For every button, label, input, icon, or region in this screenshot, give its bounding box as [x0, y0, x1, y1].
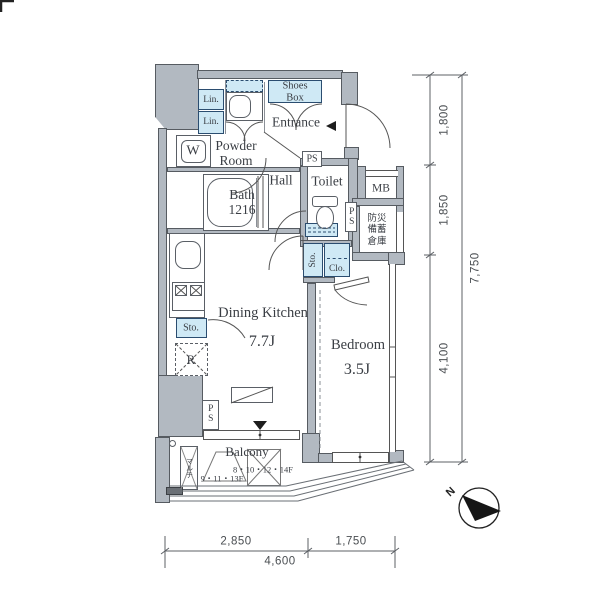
- stove-burner-1: [175, 285, 187, 296]
- label-mb: MB: [372, 183, 390, 196]
- label-linen-2: Lin.: [203, 117, 219, 127]
- label-storage-toilet-side: Sto.: [308, 252, 318, 267]
- wall-mb-left: [357, 166, 366, 202]
- dim-bottom-total-4600: 4,600: [264, 556, 295, 569]
- wall-top-left-block: [155, 64, 199, 130]
- label-dining-kitchen: Dining Kitchen: [218, 306, 308, 322]
- wall-mb-bottom: [352, 198, 404, 206]
- label-storage-kitchen: Sto.: [183, 323, 199, 334]
- dim-right-total-7750: 7,750: [470, 252, 483, 283]
- entrance-direction-icon: [326, 121, 336, 131]
- label-ps-kitchen: PS: [205, 404, 215, 424]
- compass-needle: [462, 495, 501, 521]
- label-balcony-floors-a: 9・11・13F: [201, 474, 244, 483]
- dining-table: [231, 387, 273, 403]
- label-washer: W: [186, 143, 199, 158]
- vanity-basin: [229, 95, 251, 118]
- wall-kitchen-sw-block: [158, 375, 203, 437]
- label-fridge: R: [187, 353, 196, 367]
- door-kitchen-storage: [208, 320, 245, 338]
- label-bedroom: Bedroom: [331, 338, 385, 354]
- label-closet: Clo.: [329, 264, 345, 274]
- label-ps-toilet: PS: [346, 207, 356, 227]
- window-mb-top: [366, 170, 398, 177]
- dim-right-1850: 1,850: [439, 194, 452, 225]
- label-disaster-storage: 防災備蓄倉庫: [367, 214, 386, 248]
- label-dining-kitchen-size: 7.7J: [249, 333, 275, 351]
- wall-center: [307, 283, 316, 435]
- window-dk-balcony: [203, 430, 300, 440]
- dim-bottom-2850: 2,850: [220, 536, 251, 549]
- label-ps-entrance: PS: [306, 154, 317, 165]
- door-entrance: [346, 104, 390, 148]
- label-bath: Bath1216: [229, 188, 256, 218]
- wall-entrance-right-block: [341, 72, 358, 105]
- compass-north-label: N: [444, 485, 458, 500]
- window-disaster-right: [396, 212, 404, 252]
- divider-closet-entrance: [264, 82, 265, 132]
- toilet-bowl: [316, 206, 334, 229]
- label-balcony-floors-b: 8・10・12・14F: [233, 465, 293, 474]
- stove-burner-2: [190, 285, 202, 296]
- label-entrance: Entrance: [272, 116, 320, 131]
- door-bedroom-leaf: [334, 277, 369, 290]
- closet-hanger-line: [327, 258, 347, 259]
- label-bedroom-size: 3.5J: [344, 361, 370, 379]
- compass-circle: [459, 488, 499, 528]
- dim-bottom-1750: 1,750: [335, 536, 366, 549]
- kitchen-sink: [175, 241, 201, 269]
- wall-bedroom-right-hollow: [389, 264, 396, 452]
- dim-right-4100: 4,100: [439, 342, 452, 373]
- door-dk: [269, 236, 303, 270]
- floor-plan: ShoesBox Entrance Lin. Lin. PowderRoom W…: [0, 0, 608, 613]
- label-shoes-box: ShoesBox: [282, 80, 307, 103]
- label-balcony: Balcony: [225, 445, 268, 459]
- entrance-step-line: [264, 132, 300, 158]
- label-linen-1: Lin.: [203, 95, 219, 105]
- upper-cabinet: [226, 80, 263, 92]
- balcony-entry-icon: [253, 421, 267, 430]
- crop-corner-mark: [1, 1, 14, 12]
- wall-top: [197, 70, 343, 79]
- window-bedroom-balcony: [332, 452, 389, 463]
- balcony-drain: [166, 487, 183, 495]
- label-powder-room: PowderRoom: [215, 139, 256, 169]
- label-multi-media: マルチ: [186, 458, 193, 479]
- bath-counter-line: [256, 178, 257, 227]
- balcony-faucet-circle: [169, 440, 176, 447]
- compass: [459, 488, 501, 528]
- label-hall: Hall: [269, 174, 292, 189]
- door-bedroom-swing: [335, 290, 367, 305]
- label-toilet: Toilet: [311, 175, 342, 190]
- dim-right-1800: 1,800: [439, 104, 452, 135]
